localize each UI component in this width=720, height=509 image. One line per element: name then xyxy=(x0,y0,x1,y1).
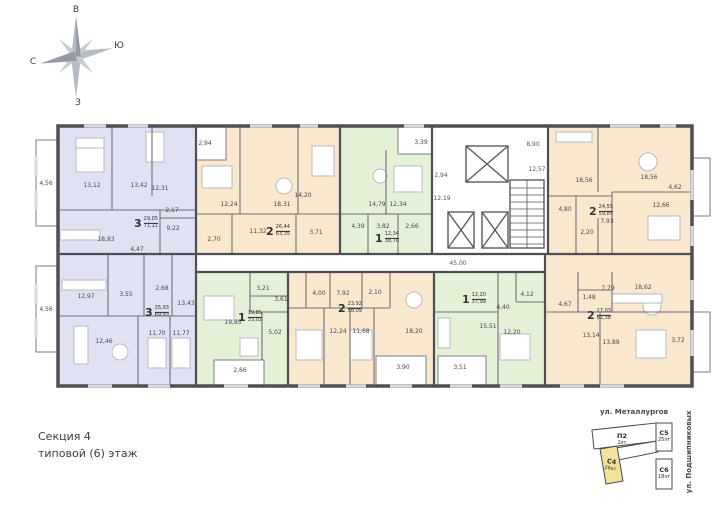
building-floors: 18эт xyxy=(658,473,670,479)
building-floors: 25эт xyxy=(658,436,670,442)
room-area-label: 2,17 xyxy=(165,208,178,214)
room-area-label: 3,72 xyxy=(671,338,684,344)
compass-east-label: В xyxy=(73,5,79,15)
room-area-label: 11,32 xyxy=(249,229,266,235)
compass-south-label: Ю xyxy=(114,41,124,51)
apartment-badge: 1 12,3438,70 xyxy=(375,232,399,244)
room-area-label: 2,94 xyxy=(198,141,211,147)
room-area-label: 18,31 xyxy=(273,202,290,208)
room-area-label: 13,43 xyxy=(177,301,194,307)
apartment-badge: 2 27,0361,38 xyxy=(587,309,611,321)
room-area-label: 2,10 xyxy=(368,290,381,296)
core-area-label: 12,19 xyxy=(433,196,450,202)
room-area-label: 2,68 xyxy=(155,286,168,292)
total-area: 71,11 xyxy=(144,224,158,230)
rooms-count: 2 xyxy=(338,303,346,314)
rooms-count: 1 xyxy=(375,233,383,244)
rooms-count: 2 xyxy=(589,206,597,217)
room-area-label: 2,66 xyxy=(405,224,418,230)
room-area-label: 13,12 xyxy=(83,183,100,189)
room-area-label: 3,82 xyxy=(376,224,389,230)
compass-rose xyxy=(40,16,114,98)
room-area-label: 12,34 xyxy=(389,202,406,208)
section-label: Секция 4 xyxy=(38,428,138,445)
room-area-label: 12,20 xyxy=(503,330,520,336)
room-area-label: 18,56 xyxy=(640,175,657,181)
room-area-label: 18,83 xyxy=(97,237,114,243)
room-area-label: 4,40 xyxy=(496,305,509,311)
core-area-label: 2,94 xyxy=(434,173,447,179)
total-area: 63,35 xyxy=(276,232,290,238)
compass-north-label: С xyxy=(30,57,36,67)
apartment-badge: 1 12,2037,99 xyxy=(462,293,486,305)
total-area: 33,02 xyxy=(248,318,262,324)
room-area-label: 11,77 xyxy=(172,331,189,337)
total-area: 38,70 xyxy=(385,239,399,245)
room-area-label: 4,56 xyxy=(39,181,52,187)
floor-label: типовой (6) этаж xyxy=(38,445,138,462)
room-area-label: 4,47 xyxy=(130,247,143,253)
room-area-label: 13,14 xyxy=(582,333,599,339)
total-area: 58,09 xyxy=(348,309,362,315)
room-area-label: 7,92 xyxy=(336,291,349,297)
room-area-label: 4,00 xyxy=(312,291,325,297)
room-area-label: 13,89 xyxy=(602,340,619,346)
compass-west-label: З xyxy=(75,98,81,108)
room-area-label: 7,93 xyxy=(600,219,613,225)
apartment-badge: 2 26,4463,35 xyxy=(266,225,290,237)
total-area: 37,99 xyxy=(472,300,486,306)
plan-caption: Секция 4 типовой (6) этаж xyxy=(38,428,138,462)
apartment-badge: 2 23,9258,09 xyxy=(338,302,362,314)
corridor-area-label: 45,00 xyxy=(449,261,466,267)
core-area-label: 12,57 xyxy=(528,167,545,173)
room-area-label: 11,68 xyxy=(352,329,369,335)
room-area-label: 3,71 xyxy=(309,230,322,236)
room-area-label: 13,42 xyxy=(130,183,147,189)
keyplan-building-s4: С4 26эт xyxy=(604,458,618,472)
room-area-label: 4,80 xyxy=(558,207,571,213)
room-area-label: 7,79 xyxy=(601,286,614,292)
street-name-right: ул. Подшипниковых xyxy=(685,411,693,494)
apartment-badge: 1 19,8533,02 xyxy=(238,311,262,323)
keyplan-building-s5: С5 25эт xyxy=(658,430,670,443)
room-area-label: 18,62 xyxy=(634,285,651,291)
room-area-label: 3,39 xyxy=(414,140,427,146)
total-area: 69,93 xyxy=(155,313,169,319)
building-label: П2 xyxy=(617,433,627,440)
room-area-label: 9,22 xyxy=(166,226,179,232)
keyplan-building-s6: С6 18эт xyxy=(658,467,670,480)
apartment-badge: 3 29,0571,11 xyxy=(134,217,158,229)
total-area: 59,85 xyxy=(599,212,613,218)
rooms-count: 2 xyxy=(266,226,274,237)
room-area-label: 4,62 xyxy=(668,185,681,191)
room-area-label: 12,97 xyxy=(77,294,94,300)
room-area-label: 4,39 xyxy=(351,224,364,230)
apartment-badge: 2 24,5559,85 xyxy=(589,205,613,217)
room-area-label: 12,46 xyxy=(95,339,112,345)
floor-plan-page: В Ю С З 3 29,0571,11 2 26,4463,35 1 12,3… xyxy=(0,0,720,509)
rooms-count: 3 xyxy=(134,218,142,229)
keyplan-building-p2: П2 2эт xyxy=(617,433,627,446)
building-label: С5 xyxy=(658,430,670,437)
room-area-label: 12,31 xyxy=(151,186,168,192)
room-area-label: 4,67 xyxy=(558,302,571,308)
room-area-label: 3,90 xyxy=(396,365,409,371)
room-area-label: 18,20 xyxy=(405,329,422,335)
building-floors: 2эт xyxy=(617,439,627,445)
room-area-label: 12,24 xyxy=(329,329,346,335)
rooms-count: 1 xyxy=(462,294,470,305)
room-area-label: 3,51 xyxy=(453,365,466,371)
room-area-label: 3,61 xyxy=(274,297,287,303)
room-area-label: 4,12 xyxy=(520,292,533,298)
rooms-count: 3 xyxy=(145,307,153,318)
room-area-label: 4,56 xyxy=(39,307,52,313)
room-area-label: 2,66 xyxy=(233,368,246,374)
room-area-label: 18,56 xyxy=(575,178,592,184)
rooms-count: 2 xyxy=(587,310,595,321)
street-name-top: ул. Металлургов xyxy=(600,408,668,416)
room-area-label: 2,70 xyxy=(207,237,220,243)
room-area-label: 2,20 xyxy=(580,230,593,236)
room-area-label: 3,55 xyxy=(119,292,132,298)
core-area-label: 8,90 xyxy=(526,142,539,148)
room-area-label: 1,48 xyxy=(582,295,595,301)
total-area: 61,38 xyxy=(597,316,611,322)
room-area-label: 12,24 xyxy=(220,202,237,208)
room-area-label: 12,66 xyxy=(652,203,669,209)
room-area-label: 5,02 xyxy=(268,330,281,336)
room-area-label: 19,85 xyxy=(224,320,241,326)
room-area-label: 15,51 xyxy=(479,324,496,330)
room-area-label: 14,79 xyxy=(368,202,385,208)
apartment-badge: 3 35,9369,93 xyxy=(145,306,169,318)
room-area-label: 3,21 xyxy=(256,286,269,292)
building-label: С6 xyxy=(658,467,670,474)
room-area-label: 14,20 xyxy=(294,193,311,199)
room-area-label: 11,70 xyxy=(148,331,165,337)
